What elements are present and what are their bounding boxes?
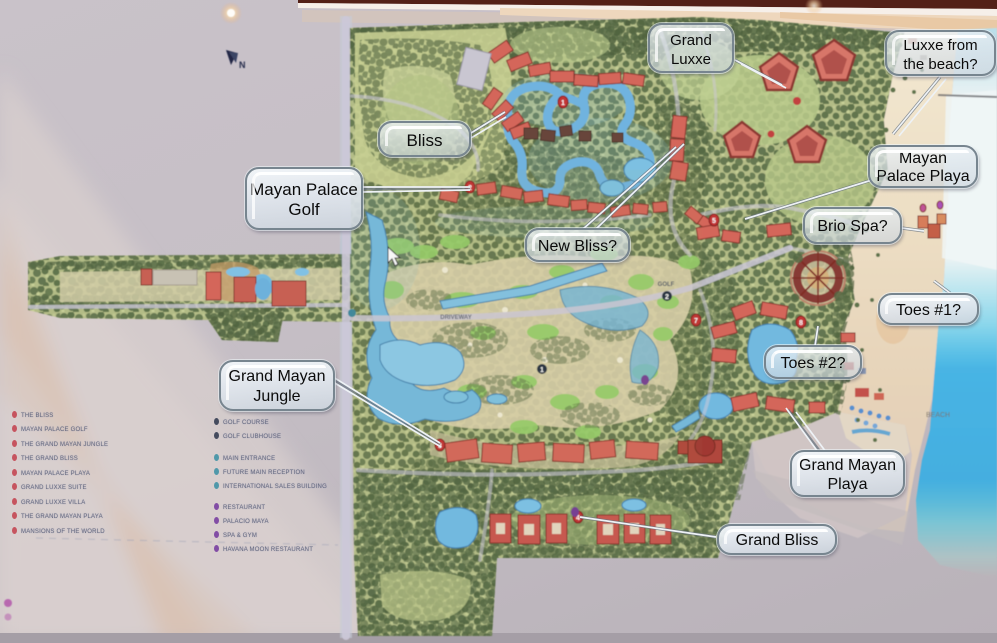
svg-text:5: 5 [712,218,716,225]
svg-text:N: N [239,60,246,70]
svg-text:8: 8 [799,320,803,327]
svg-text:1: 1 [561,100,565,107]
svg-text:BEACH: BEACH [926,412,950,419]
